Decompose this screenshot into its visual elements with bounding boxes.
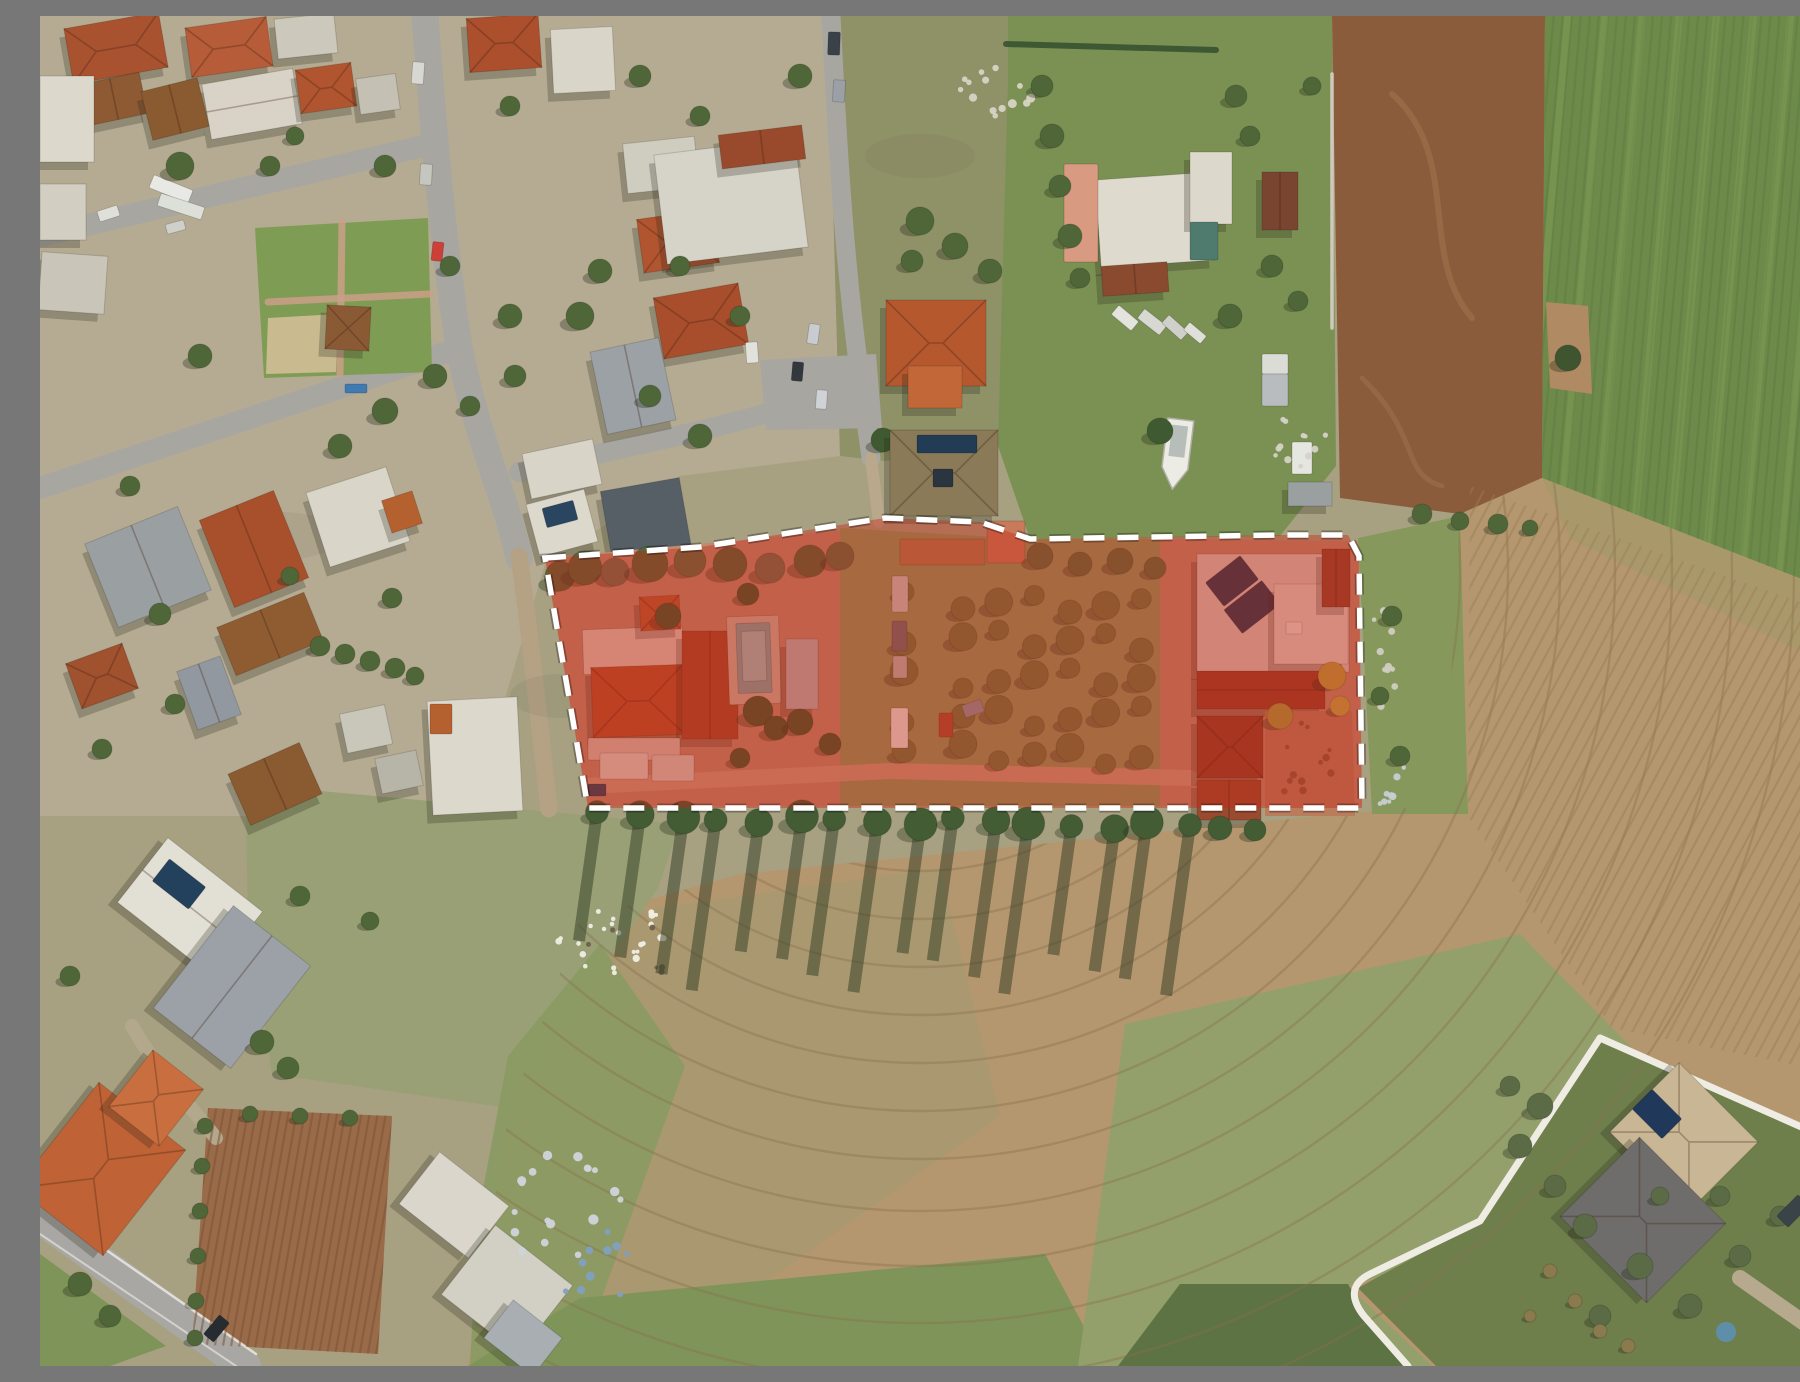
house: [40, 251, 108, 322]
east-green-strip: [1358, 516, 1468, 814]
house: [289, 62, 358, 122]
car: [828, 32, 841, 55]
car: [791, 362, 804, 382]
plowed-brown-strip: [1332, 16, 1545, 514]
ground-blotch-3: [865, 134, 975, 178]
tr-white-house: [1184, 152, 1232, 232]
tree: [56, 966, 81, 987]
playground-bench: [345, 384, 367, 393]
house: [544, 26, 616, 101]
aerial-photo: [40, 16, 1800, 1366]
house: [40, 76, 94, 170]
hedge-tree: [190, 1158, 210, 1175]
house: [460, 16, 542, 81]
plot-driveway: [871, 458, 879, 522]
car: [411, 62, 425, 85]
house: [350, 73, 402, 123]
layer-park: [255, 218, 432, 393]
plot-red-overlay: [545, 518, 1362, 808]
hedge-tree: [188, 1203, 208, 1220]
park-gazebo: [318, 305, 371, 360]
car: [807, 323, 821, 344]
small-pool: [1716, 1322, 1736, 1342]
car: [745, 342, 758, 364]
tr-rust-shed: [1256, 172, 1298, 238]
terracotta-bit: [430, 704, 452, 734]
east-gray-shed: [1282, 482, 1332, 514]
truck-cab: [1262, 354, 1288, 374]
skylight: [933, 469, 953, 487]
car: [419, 164, 432, 186]
redbrown-roof: [1095, 262, 1169, 305]
hedge-tree: [184, 1293, 204, 1310]
aerial-photo-figure: Aerial drone photograph of a Cyprus-styl…: [40, 16, 1800, 1366]
house: [40, 184, 86, 248]
car-red: [431, 241, 444, 261]
solar-panels: [917, 435, 977, 453]
house: [268, 16, 339, 68]
truck-box: [1262, 374, 1288, 406]
car: [815, 390, 827, 410]
hedge-tree: [186, 1248, 206, 1265]
tr-teal-awning: [1190, 222, 1218, 260]
layer-plot-overlay: [545, 518, 1362, 808]
orange-house-garage: [902, 366, 962, 416]
car: [832, 80, 845, 103]
